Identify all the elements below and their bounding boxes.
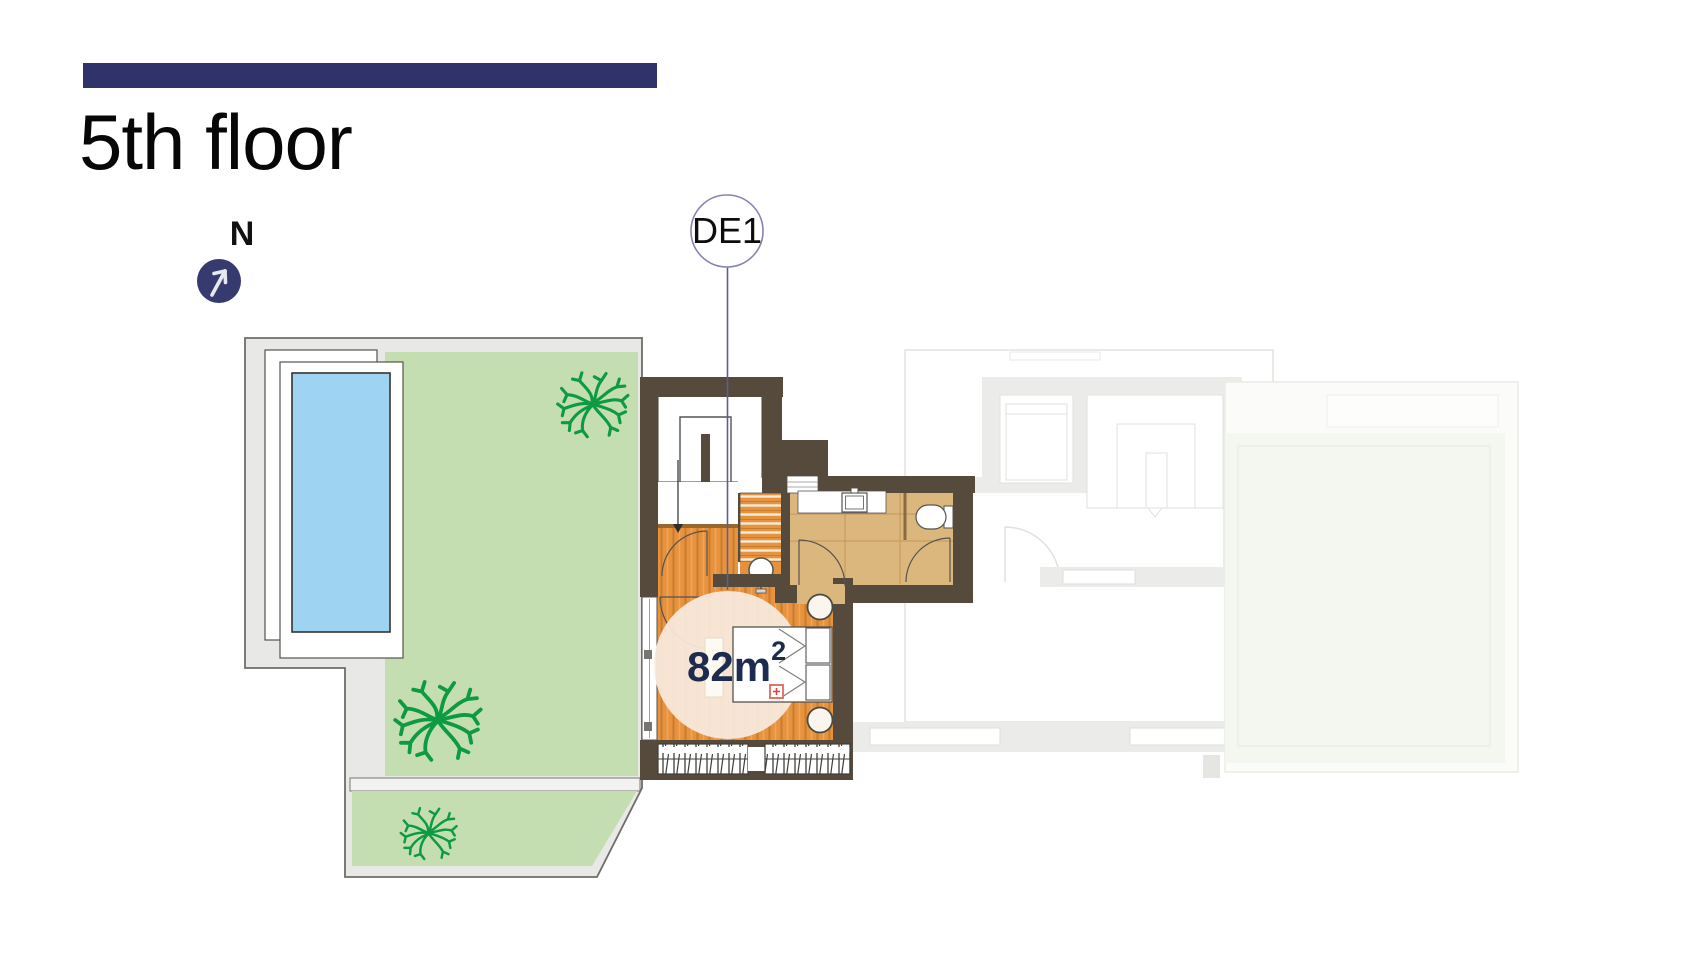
nightstand — [808, 708, 833, 733]
socket-icon — [770, 685, 783, 698]
nightstand — [808, 595, 833, 620]
pool-water — [292, 373, 390, 632]
bathroom-window — [787, 476, 818, 493]
north-label: N — [230, 215, 255, 253]
neighbor-stairwell — [1087, 395, 1223, 508]
area-exponent: 2 — [771, 636, 786, 666]
garden-lawn-lower — [352, 791, 637, 866]
terrace-platform — [245, 338, 642, 877]
unit-badge[interactable]: DE1 — [691, 195, 763, 267]
garden-path — [350, 778, 640, 791]
landing-floor — [658, 528, 738, 577]
neighbor-elevator — [1000, 395, 1073, 483]
swimming-pool — [265, 350, 403, 658]
neighbor-terrace — [1225, 382, 1518, 772]
staircase — [740, 493, 783, 562]
toilet — [916, 505, 953, 529]
north-indicator: N — [197, 215, 254, 303]
floor-plan-svg: 82m2 DE1 N — [0, 0, 1704, 980]
wardrobe — [658, 744, 850, 774]
unit-badge-label[interactable]: DE1 — [692, 210, 762, 251]
